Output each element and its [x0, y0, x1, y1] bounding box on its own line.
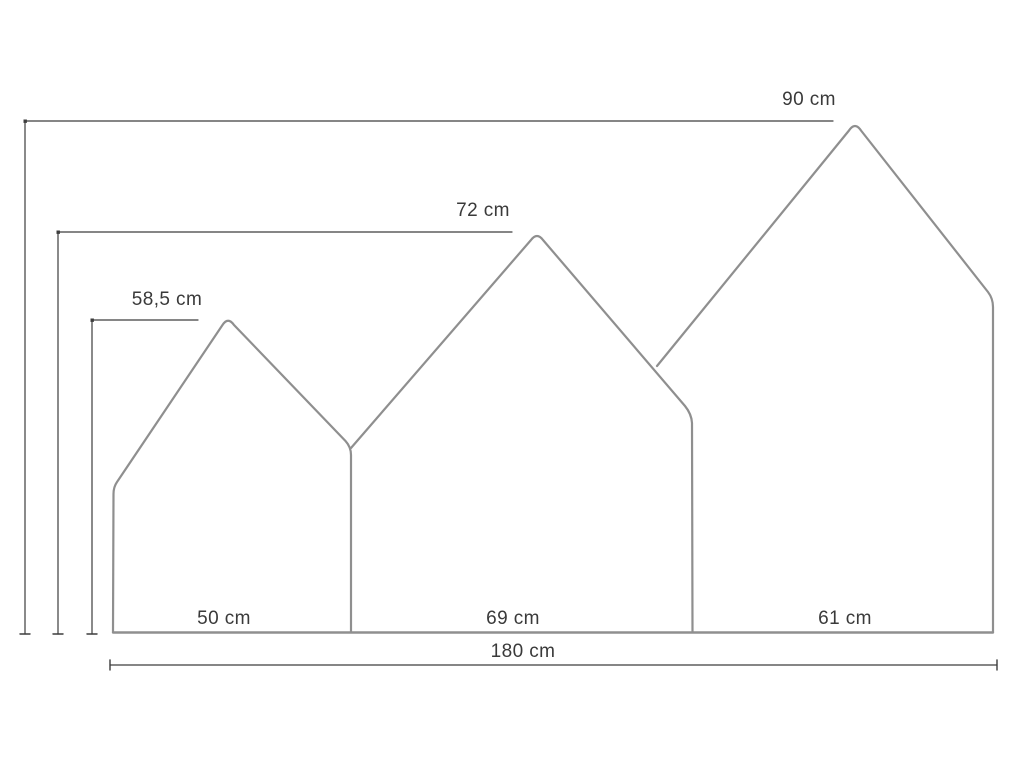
total-width-label: 180 cm [491, 641, 556, 662]
height-middle-corner-dot [57, 231, 60, 234]
dimension-height-middle [53, 231, 512, 635]
height-left-corner-dot [91, 319, 94, 322]
width-middle-label: 69 cm [486, 608, 540, 629]
height-right-label: 90 cm [782, 89, 836, 110]
diagram-canvas: 90 cm 72 cm 58,5 cm 50 cm 69 cm 61 cm 18… [0, 0, 1024, 768]
panel-right-outline [657, 126, 993, 632]
panel-middle-outline [351, 236, 693, 632]
height-right-corner-dot [24, 120, 27, 123]
dimension-height-right [20, 120, 833, 635]
width-left-label: 50 cm [197, 608, 251, 629]
width-right-label: 61 cm [818, 608, 872, 629]
panels-outline-group [113, 126, 993, 633]
height-left-label: 58,5 cm [132, 289, 202, 310]
dimension-height-left [87, 319, 198, 635]
dimension-labels: 90 cm 72 cm 58,5 cm 50 cm 69 cm 61 cm 18… [132, 89, 872, 662]
height-middle-label: 72 cm [456, 200, 510, 221]
panel-left-outline [113, 321, 351, 632]
dimension-diagram: 90 cm 72 cm 58,5 cm 50 cm 69 cm 61 cm 18… [0, 0, 1024, 768]
